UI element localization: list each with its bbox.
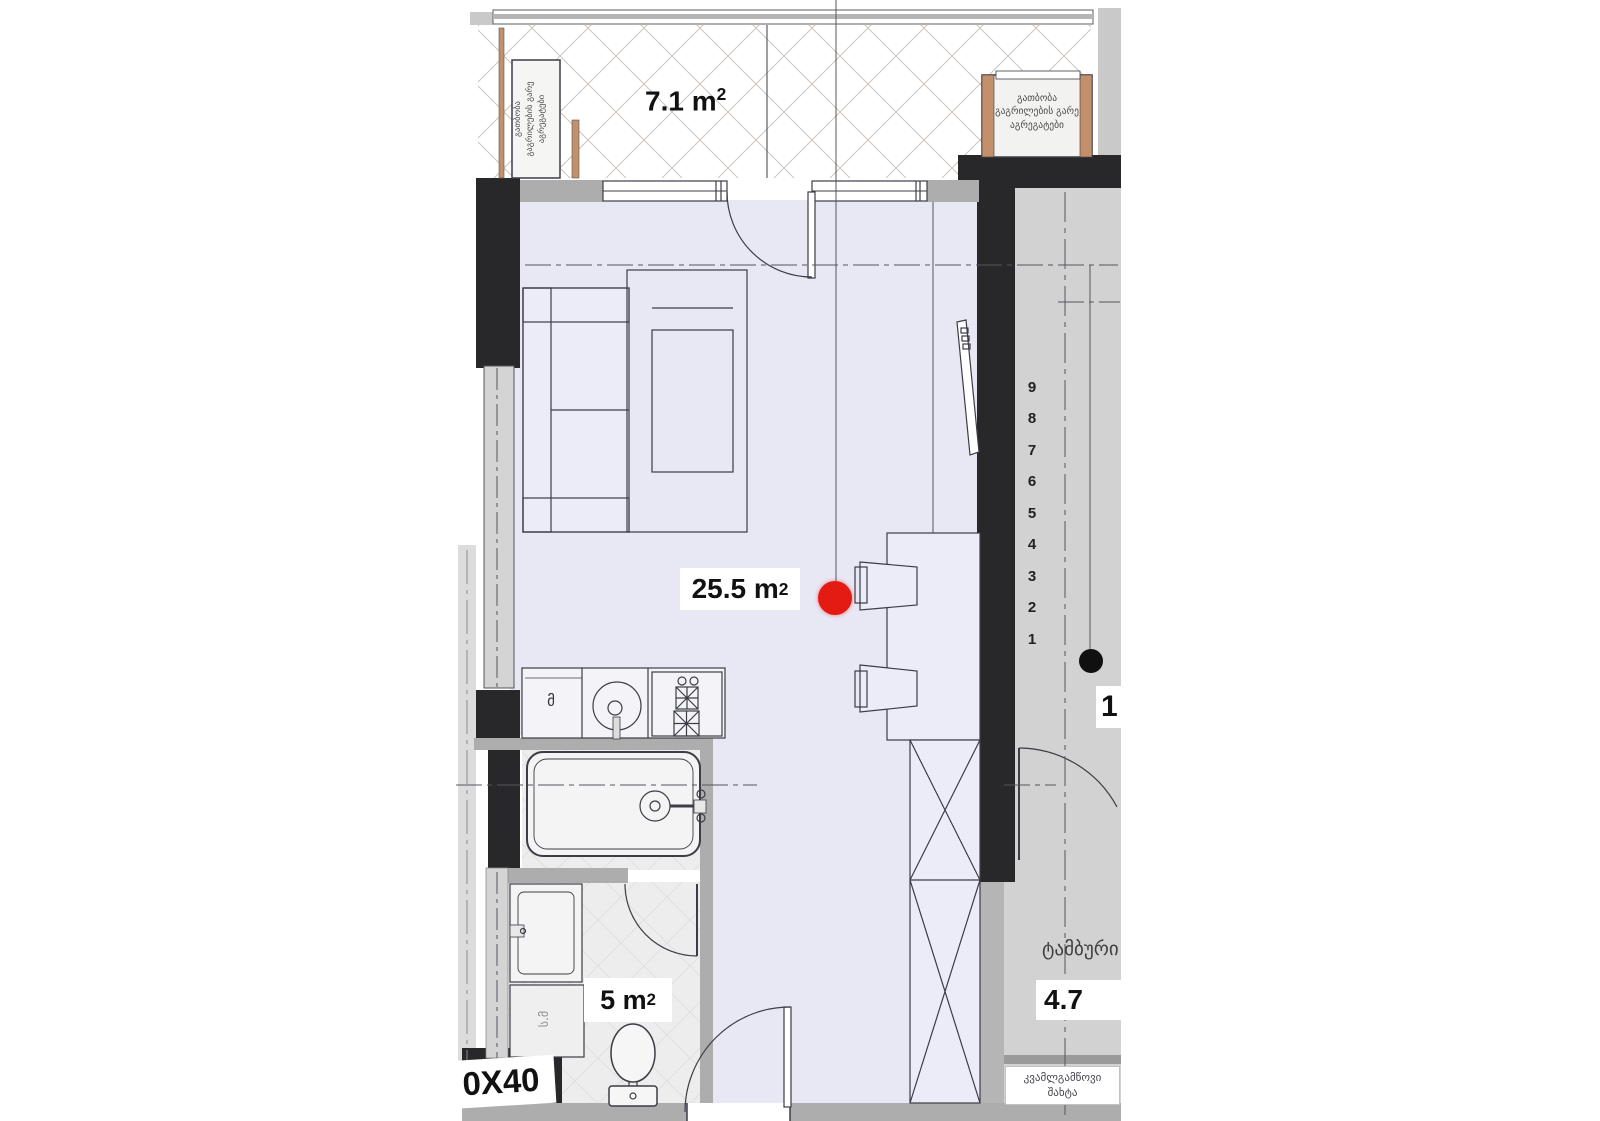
bathtub (527, 752, 706, 856)
sofa (523, 288, 629, 532)
dining-table (887, 533, 980, 740)
floor-plan-drawing (0, 0, 1122, 1121)
balcony-area-label: 7.1 m2 (645, 84, 726, 117)
ac-unit-right-label: გათბობა გაგრილების გარე აგრეგატები (986, 92, 1088, 132)
smoke-shaft-label: კვამლგამწოვი შახტა (1005, 1066, 1120, 1105)
column-size-note: 0X40 (446, 1055, 557, 1110)
corridor-axis-marker[interactable] (1079, 649, 1103, 673)
vestibule-name-label: ტამბური (1042, 938, 1119, 960)
washer-mark: ს.მ (537, 997, 551, 1041)
stair-step-5: 5 (1022, 505, 1042, 522)
chair (855, 562, 917, 610)
stair-step-7: 7 (1022, 442, 1042, 459)
stair-step-1: 1 (1022, 631, 1042, 648)
living-area-label: 25.5 m2 (680, 568, 800, 610)
stair-step-9: 9 (1022, 379, 1042, 396)
wardrobe (910, 740, 980, 1103)
floor-plan-page: 7.1 m2 25.5 m2 5 m2 4.7 1 0X40 ტამბური კ… (0, 0, 1600, 1121)
apartment-location-marker[interactable] (818, 581, 852, 615)
vestibule-area-label: 4.7 (1036, 980, 1122, 1020)
stair-step-2: 2 (1022, 599, 1042, 616)
stair-step-3: 3 (1022, 568, 1042, 585)
floor-plan[interactable]: 7.1 m2 25.5 m2 5 m2 4.7 1 0X40 ტამბური კ… (0, 0, 1122, 1121)
floor-number-label: 1 (1096, 686, 1122, 728)
fridge-mark: მ (538, 692, 564, 710)
stair-step-4: 4 (1022, 536, 1042, 553)
vestibule-name-clip: ტამბური (1042, 938, 1121, 966)
stair-step-8: 8 (1022, 410, 1042, 427)
bathroom-area-label: 5 m2 (584, 978, 672, 1022)
toilet (609, 1024, 657, 1106)
vanity-sink (510, 884, 582, 982)
chair (855, 665, 917, 712)
stair-step-6: 6 (1022, 473, 1042, 490)
ac-unit-left-label: გათბობა გაგრილების გარე აგრეგატები (513, 60, 559, 178)
